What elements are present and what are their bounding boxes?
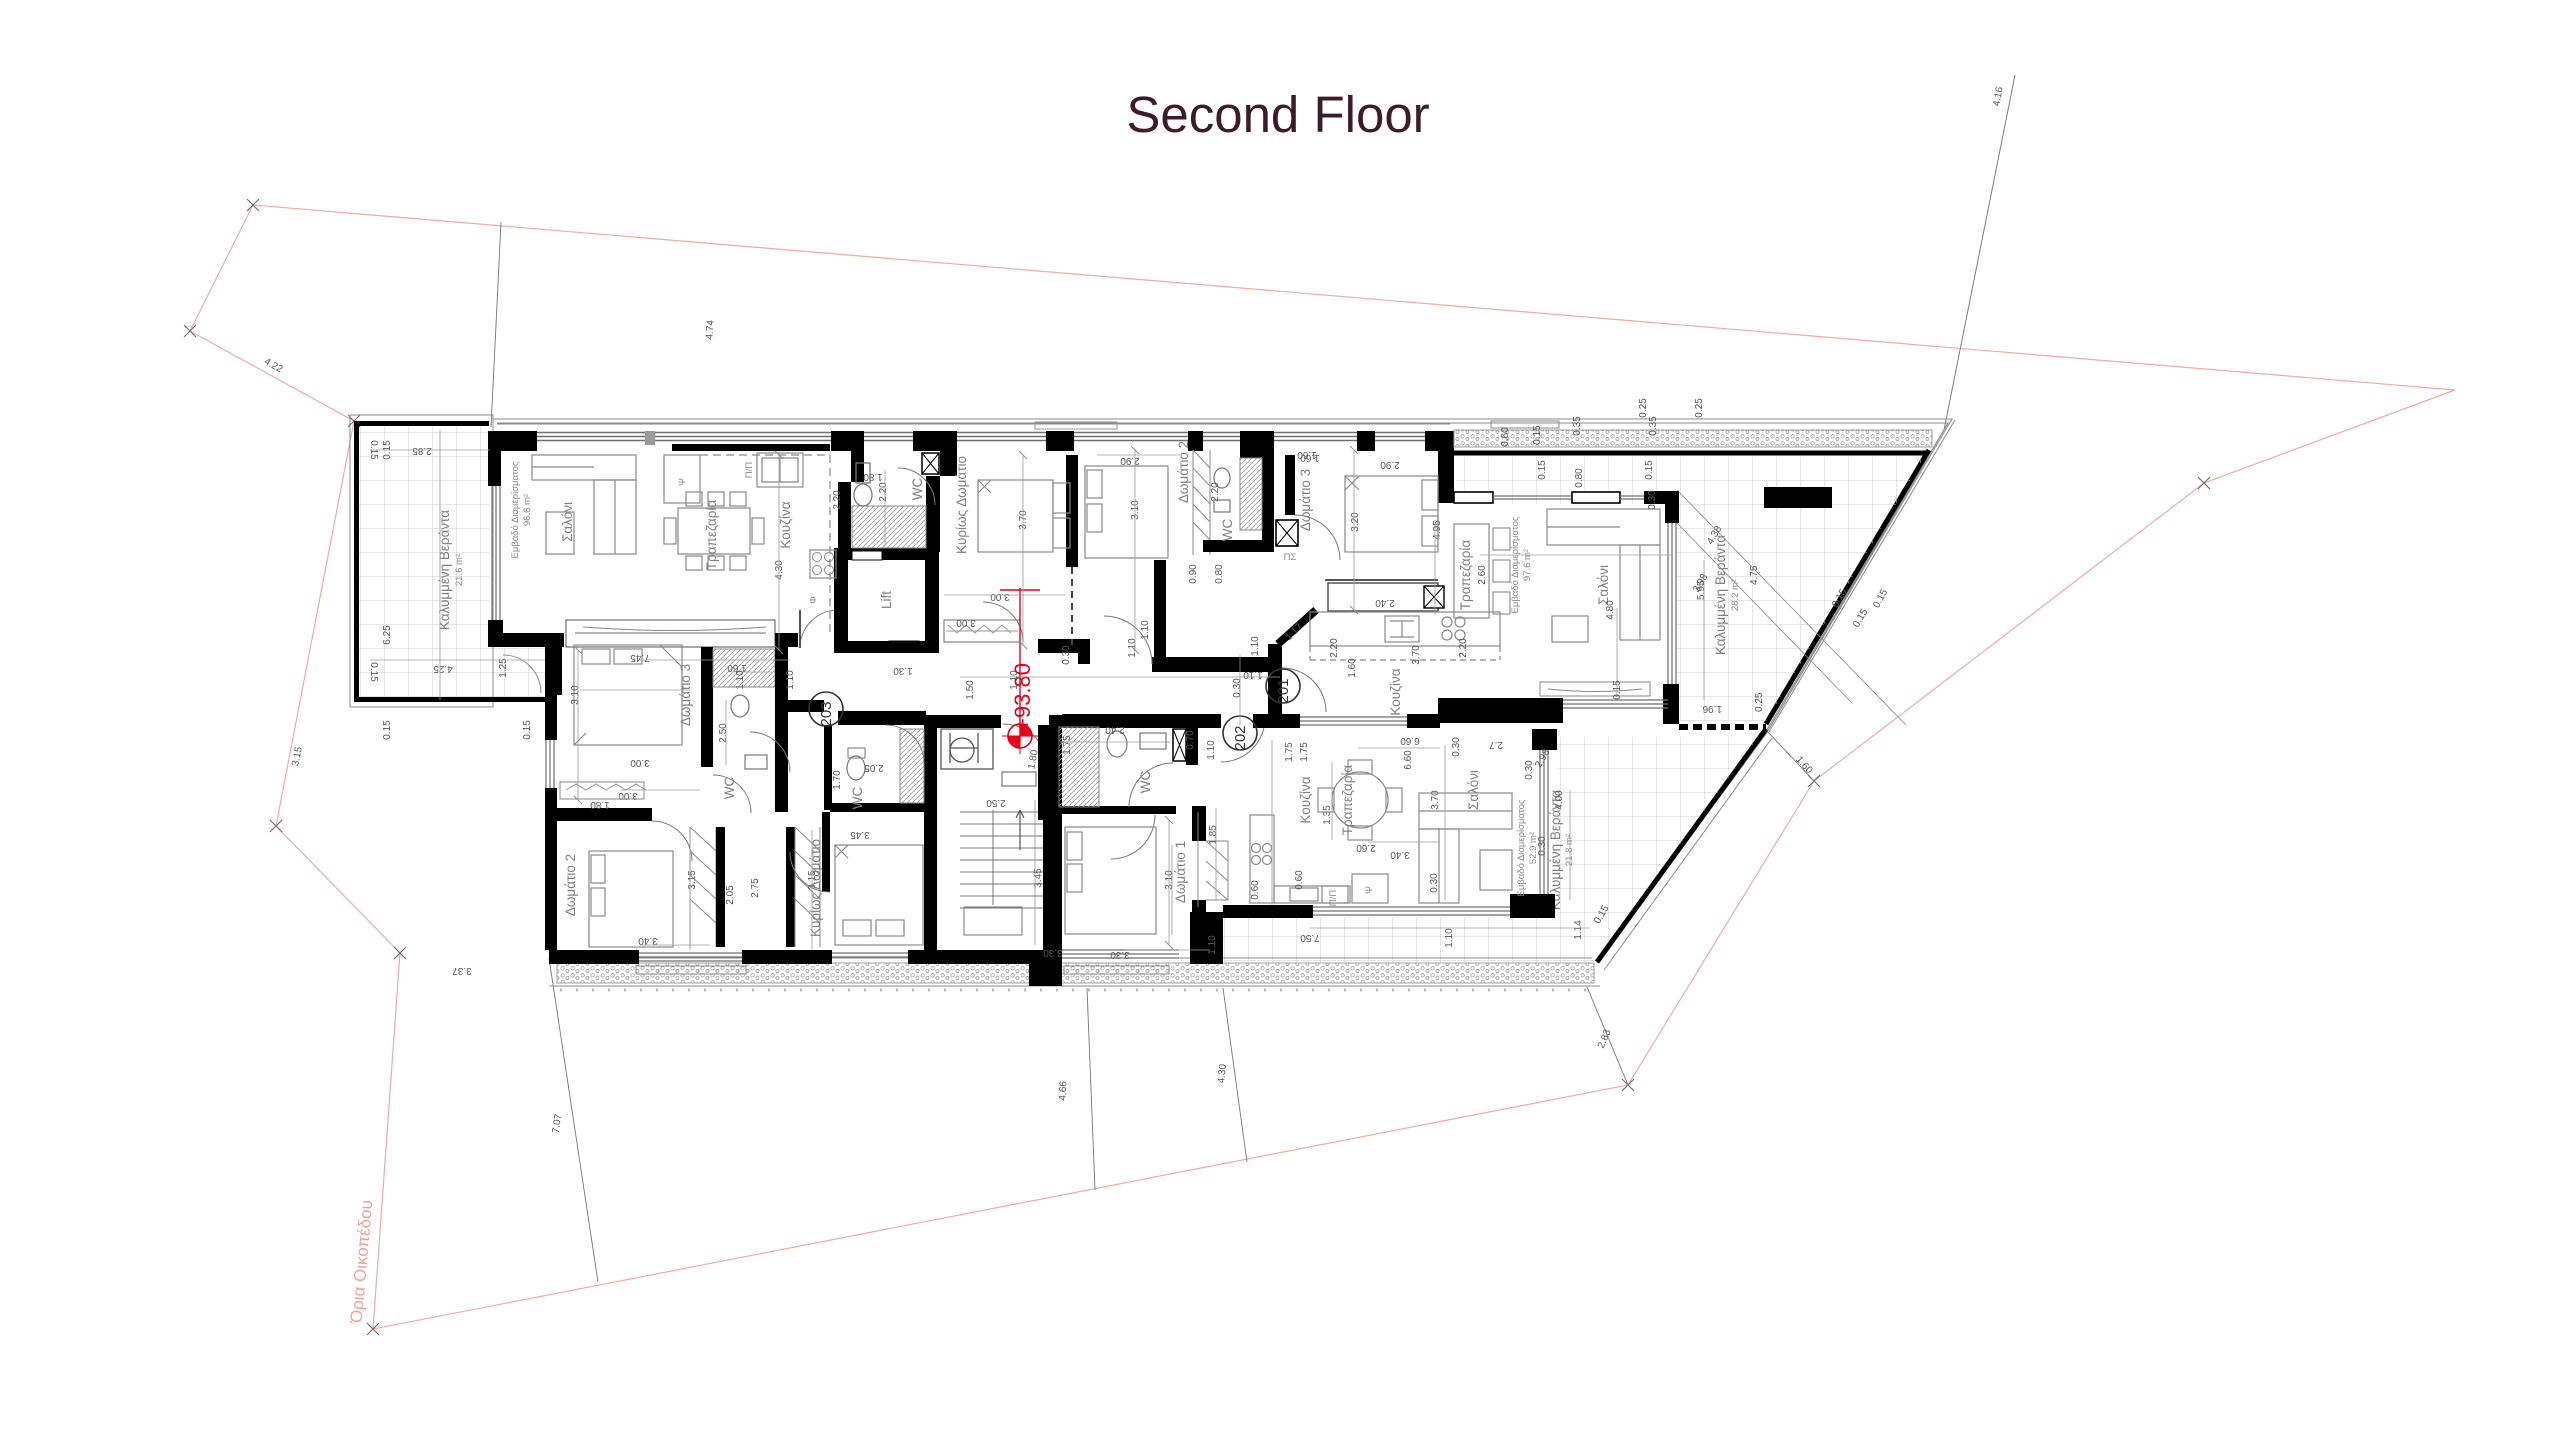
svg-text:0.60: 0.60 bbox=[1250, 880, 1261, 900]
svg-text:3.40: 3.40 bbox=[638, 935, 658, 946]
svg-text:WC: WC bbox=[1138, 771, 1153, 794]
svg-text:Ψ: Ψ bbox=[1364, 886, 1375, 894]
svg-text:1.85: 1.85 bbox=[1208, 825, 1219, 845]
svg-text:4.75: 4.75 bbox=[1749, 565, 1760, 585]
svg-text:2.05: 2.05 bbox=[725, 885, 736, 905]
svg-text:202: 202 bbox=[1232, 725, 1249, 750]
svg-text:Π/Π: Π/Π bbox=[744, 462, 755, 479]
svg-text:Κουζίνα: Κουζίνα bbox=[1298, 776, 1313, 823]
svg-text:21.6 m²: 21.6 m² bbox=[454, 554, 465, 586]
svg-text:0.15: 0.15 bbox=[382, 720, 393, 740]
svg-text:WC: WC bbox=[850, 787, 865, 810]
svg-text:3.10: 3.10 bbox=[570, 685, 581, 705]
svg-text:4.30: 4.30 bbox=[774, 560, 785, 580]
svg-text:2.50: 2.50 bbox=[986, 797, 1006, 808]
svg-text:1.60: 1.60 bbox=[1297, 449, 1317, 460]
svg-text:21.8 m²: 21.8 m² bbox=[1564, 834, 1575, 866]
svg-text:2.20: 2.20 bbox=[832, 490, 843, 510]
svg-text:Τραπεζαρία: Τραπεζαρία bbox=[1340, 765, 1355, 836]
svg-text:1.70: 1.70 bbox=[832, 770, 843, 790]
svg-text:1.96: 1.96 bbox=[1702, 703, 1722, 714]
svg-text:3.30: 3.30 bbox=[1110, 949, 1130, 960]
svg-text:WC: WC bbox=[1220, 519, 1235, 542]
svg-text:2.7: 2.7 bbox=[1489, 739, 1503, 750]
svg-text:0.25: 0.25 bbox=[1694, 398, 1705, 418]
svg-text:4.66: 4.66 bbox=[1058, 1080, 1070, 1100]
svg-text:1.10: 1.10 bbox=[1207, 935, 1218, 955]
svg-text:3.70: 3.70 bbox=[1411, 645, 1422, 665]
svg-text:1.10: 1.10 bbox=[785, 670, 796, 690]
svg-text:1.10: 1.10 bbox=[1243, 669, 1263, 680]
svg-text:2.40: 2.40 bbox=[1105, 724, 1125, 735]
svg-text:Κυρίως Δωμάτιο: Κυρίως Δωμάτιο bbox=[808, 839, 823, 937]
svg-text:1.10: 1.10 bbox=[1009, 670, 1020, 690]
svg-text:4.80: 4.80 bbox=[1605, 600, 1616, 620]
svg-text:WC: WC bbox=[910, 478, 925, 501]
svg-text:0.15: 0.15 bbox=[1644, 460, 1655, 480]
svg-text:1.75: 1.75 bbox=[1299, 742, 1310, 762]
svg-text:Second Floor: Second Floor bbox=[1126, 86, 1429, 143]
svg-text:1.60: 1.60 bbox=[1347, 658, 1358, 678]
svg-text:0.15: 0.15 bbox=[522, 720, 533, 740]
svg-text:4.74: 4.74 bbox=[704, 319, 716, 340]
svg-text:1.10: 1.10 bbox=[1140, 620, 1151, 640]
svg-text:1.75: 1.75 bbox=[1284, 742, 1295, 762]
svg-text:0.25: 0.25 bbox=[1754, 692, 1765, 712]
svg-text:2.20: 2.20 bbox=[878, 482, 889, 502]
svg-text:6.60: 6.60 bbox=[1400, 735, 1420, 746]
svg-text:Δωμάτιο 3: Δωμάτιο 3 bbox=[678, 664, 693, 726]
svg-text:97.6 m²: 97.6 m² bbox=[1522, 549, 1533, 581]
svg-text:ΠΣ: ΠΣ bbox=[1284, 552, 1297, 563]
svg-text:0.35: 0.35 bbox=[1572, 416, 1583, 436]
svg-text:4.25: 4.25 bbox=[433, 663, 453, 674]
svg-text:3.00: 3.00 bbox=[630, 757, 650, 768]
svg-text:Σαλόνι: Σαλόνι bbox=[1466, 770, 1481, 810]
svg-text:2.40: 2.40 bbox=[1375, 597, 1395, 608]
svg-text:2.60: 2.60 bbox=[1356, 842, 1376, 853]
svg-text:0.15: 0.15 bbox=[368, 662, 379, 682]
svg-text:1.14: 1.14 bbox=[1573, 920, 1584, 940]
svg-text:Τραπεζαρία: Τραπεζαρία bbox=[704, 500, 719, 571]
svg-text:0.80: 0.80 bbox=[1214, 564, 1225, 584]
svg-text:WC: WC bbox=[722, 777, 737, 800]
svg-text:1.25: 1.25 bbox=[498, 658, 509, 678]
svg-text:0.60: 0.60 bbox=[1294, 870, 1305, 890]
svg-text:Τραπεζαρία: Τραπεζαρία bbox=[1458, 540, 1473, 611]
svg-text:0.30: 0.30 bbox=[1537, 836, 1548, 856]
svg-text:5.95: 5.95 bbox=[1696, 580, 1707, 600]
svg-text:3.00: 3.00 bbox=[990, 591, 1010, 602]
svg-text:3.40: 3.40 bbox=[1390, 849, 1410, 860]
svg-text:Κυρίως Δωμάτιο: Κυρίως Δωμάτιο bbox=[954, 456, 969, 554]
svg-text:3.70: 3.70 bbox=[1018, 510, 1029, 530]
svg-text:1.30: 1.30 bbox=[893, 665, 913, 676]
svg-text:Δωμάτιο 3: Δωμάτιο 3 bbox=[1298, 469, 1313, 531]
svg-text:7.45: 7.45 bbox=[630, 652, 650, 663]
svg-text:Εμβαδό Διαμερίσματος: Εμβαδό Διαμερίσματος bbox=[1510, 516, 1521, 613]
svg-text:96.6 m²: 96.6 m² bbox=[522, 494, 533, 526]
svg-text:1.35: 1.35 bbox=[1322, 805, 1333, 825]
svg-text:2.90: 2.90 bbox=[1120, 455, 1140, 466]
svg-text:6.25: 6.25 bbox=[382, 625, 393, 645]
svg-text:Φ: Φ bbox=[808, 596, 819, 604]
svg-text:Δωμάτιο 2: Δωμάτιο 2 bbox=[1176, 441, 1191, 503]
svg-text:1.10: 1.10 bbox=[735, 670, 746, 690]
svg-text:1.10: 1.10 bbox=[1206, 740, 1217, 760]
svg-text:2.75: 2.75 bbox=[750, 878, 761, 898]
svg-text:2.05: 2.05 bbox=[864, 762, 884, 773]
svg-text:3.00: 3.00 bbox=[956, 617, 976, 628]
svg-text:Καλυμμένη Βεράντα: Καλυμμένη Βεράντα bbox=[437, 510, 452, 630]
svg-text:3.20: 3.20 bbox=[1350, 512, 1361, 532]
svg-text:201: 201 bbox=[1275, 678, 1292, 703]
svg-text:3.15: 3.15 bbox=[687, 870, 698, 890]
svg-text:7.50: 7.50 bbox=[1300, 932, 1320, 943]
svg-text:Π/Π: Π/Π bbox=[1328, 890, 1339, 907]
svg-text:Καλυμμένη Βεράντα: Καλυμμένη Βεράντα bbox=[1713, 535, 1728, 655]
svg-text:1.75: 1.75 bbox=[1062, 735, 1073, 755]
svg-text:4.30: 4.30 bbox=[1216, 1063, 1229, 1084]
svg-text:0.15: 0.15 bbox=[1532, 425, 1543, 445]
svg-text:1.10: 1.10 bbox=[1444, 928, 1455, 948]
svg-text:0.70: 0.70 bbox=[1185, 730, 1196, 750]
svg-text:203: 203 bbox=[818, 701, 835, 726]
svg-text:6.60: 6.60 bbox=[1403, 750, 1414, 770]
svg-text:Εμβαδό Διαμερίσματος: Εμβαδό Διαμερίσματος bbox=[510, 461, 521, 558]
svg-text:Σαλόνι: Σαλόνι bbox=[1596, 565, 1611, 605]
svg-text:Κουζίνα: Κουζίνα bbox=[778, 501, 793, 548]
svg-text:1.50: 1.50 bbox=[965, 680, 976, 700]
svg-text:2.20: 2.20 bbox=[1458, 638, 1469, 658]
svg-text:0.30: 0.30 bbox=[1232, 678, 1243, 698]
svg-text:3.10: 3.10 bbox=[1164, 870, 1175, 890]
svg-text:Lift: Lift bbox=[879, 591, 894, 609]
svg-text:1.80: 1.80 bbox=[590, 799, 610, 810]
svg-text:Εμβαδό Διαμερίσματος: Εμβαδό Διαμερίσματος bbox=[1516, 799, 1527, 896]
svg-text:Σαλόνι: Σαλόνι bbox=[560, 502, 575, 542]
svg-text:2.20: 2.20 bbox=[1210, 482, 1221, 502]
svg-text:1.10: 1.10 bbox=[1250, 636, 1261, 656]
svg-text:3.45: 3.45 bbox=[850, 829, 870, 840]
svg-text:Κουζίνα: Κουζίνα bbox=[1388, 668, 1403, 715]
svg-text:2.20: 2.20 bbox=[1329, 638, 1340, 658]
svg-text:0.90: 0.90 bbox=[1188, 564, 1199, 584]
svg-text:1.80: 1.80 bbox=[863, 471, 883, 482]
svg-text:2.90: 2.90 bbox=[1380, 459, 1400, 470]
svg-text:Δωμάτιο 1: Δωμάτιο 1 bbox=[1173, 841, 1188, 903]
svg-text:Δωμάτιο 2: Δωμάτιο 2 bbox=[563, 854, 578, 916]
svg-text:0.60: 0.60 bbox=[1500, 427, 1511, 447]
svg-text:2.60: 2.60 bbox=[1477, 565, 1488, 585]
svg-text:0.15: 0.15 bbox=[1537, 460, 1548, 480]
svg-text:0.30: 0.30 bbox=[1647, 490, 1658, 510]
svg-text:2.85: 2.85 bbox=[412, 445, 432, 456]
svg-text:2.50: 2.50 bbox=[718, 723, 729, 743]
svg-text:0.35: 0.35 bbox=[1648, 416, 1659, 436]
svg-text:4.00: 4.00 bbox=[1554, 790, 1565, 810]
svg-text:0.80: 0.80 bbox=[1574, 468, 1585, 488]
svg-text:3.37: 3.37 bbox=[452, 965, 472, 976]
svg-text:0.30: 0.30 bbox=[1451, 737, 1462, 757]
svg-text:0.15: 0.15 bbox=[1612, 680, 1623, 700]
svg-text:Ψ: Ψ bbox=[677, 478, 688, 486]
svg-text:0.25: 0.25 bbox=[1638, 398, 1649, 418]
svg-text:0.30: 0.30 bbox=[1429, 873, 1440, 893]
svg-text:0.30: 0.30 bbox=[1524, 760, 1535, 780]
svg-text:3.10: 3.10 bbox=[1130, 500, 1141, 520]
svg-text:0.30: 0.30 bbox=[1061, 645, 1072, 665]
